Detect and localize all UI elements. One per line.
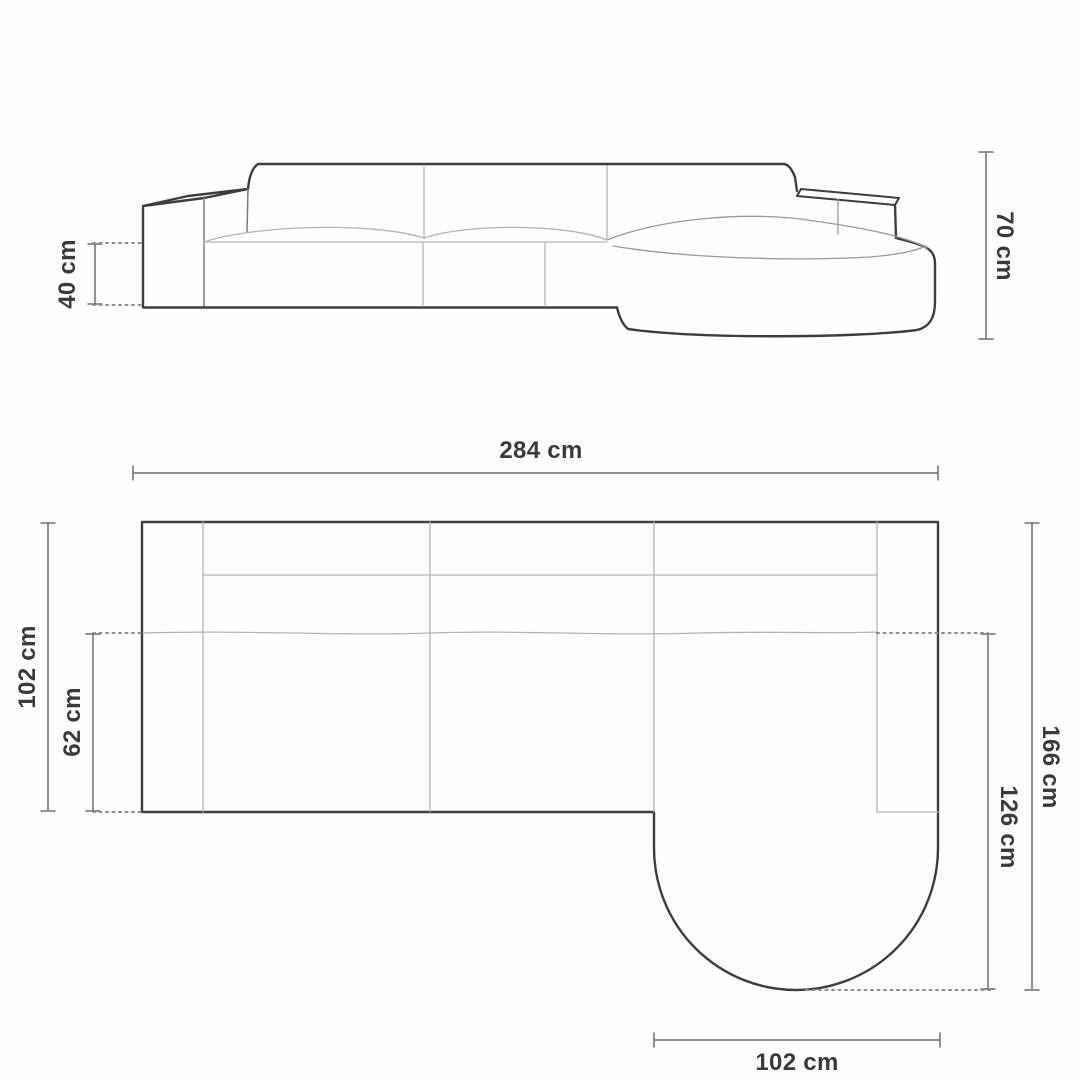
dim-label-chaise-width: 102 cm [755,1049,838,1077]
front-chaise-cushion-seam [613,246,926,259]
plan-dim-total-width [133,466,938,480]
front-dim-seat-height [88,243,141,305]
top-plan-view [41,466,1039,1047]
front-left-armrest [143,189,248,307]
front-elevation-view [88,152,993,339]
plan-seat-front-line [143,632,877,634]
dim-label-seat-height: 40 cm [54,239,82,309]
front-base-dividers [423,242,545,306]
front-chaise-cushion-top [607,216,927,248]
plan-dim-total-depth [41,523,55,811]
diagram-canvas [0,0,1080,1080]
front-backrest [248,164,797,191]
plan-outline [142,522,938,990]
dim-label-total-depth: 102 cm [14,625,42,708]
sofa-dimension-diagram: 40 cm 70 cm 284 cm 102 cm 62 cm 166 cm 1… [0,0,1080,1080]
plan-dim-chaise-width [654,1033,940,1047]
dim-label-total-height: 70 cm [990,211,1018,281]
front-backrest-left-edge [247,189,248,232]
dim-label-total-width: 284 cm [499,437,582,465]
front-right-armrest [797,189,899,205]
dim-label-seat-depth: 62 cm [59,687,87,757]
plan-dim-seat-depth [86,633,143,812]
plan-seat-dividers [430,522,654,812]
front-cushion-curves [204,227,607,242]
front-backrest-dividers [424,166,607,239]
dim-label-chaise-depth-total: 166 cm [1036,725,1064,808]
dim-label-chaise-depth-inner: 126 cm [994,785,1022,868]
plan-right-armrest-line [877,522,938,812]
